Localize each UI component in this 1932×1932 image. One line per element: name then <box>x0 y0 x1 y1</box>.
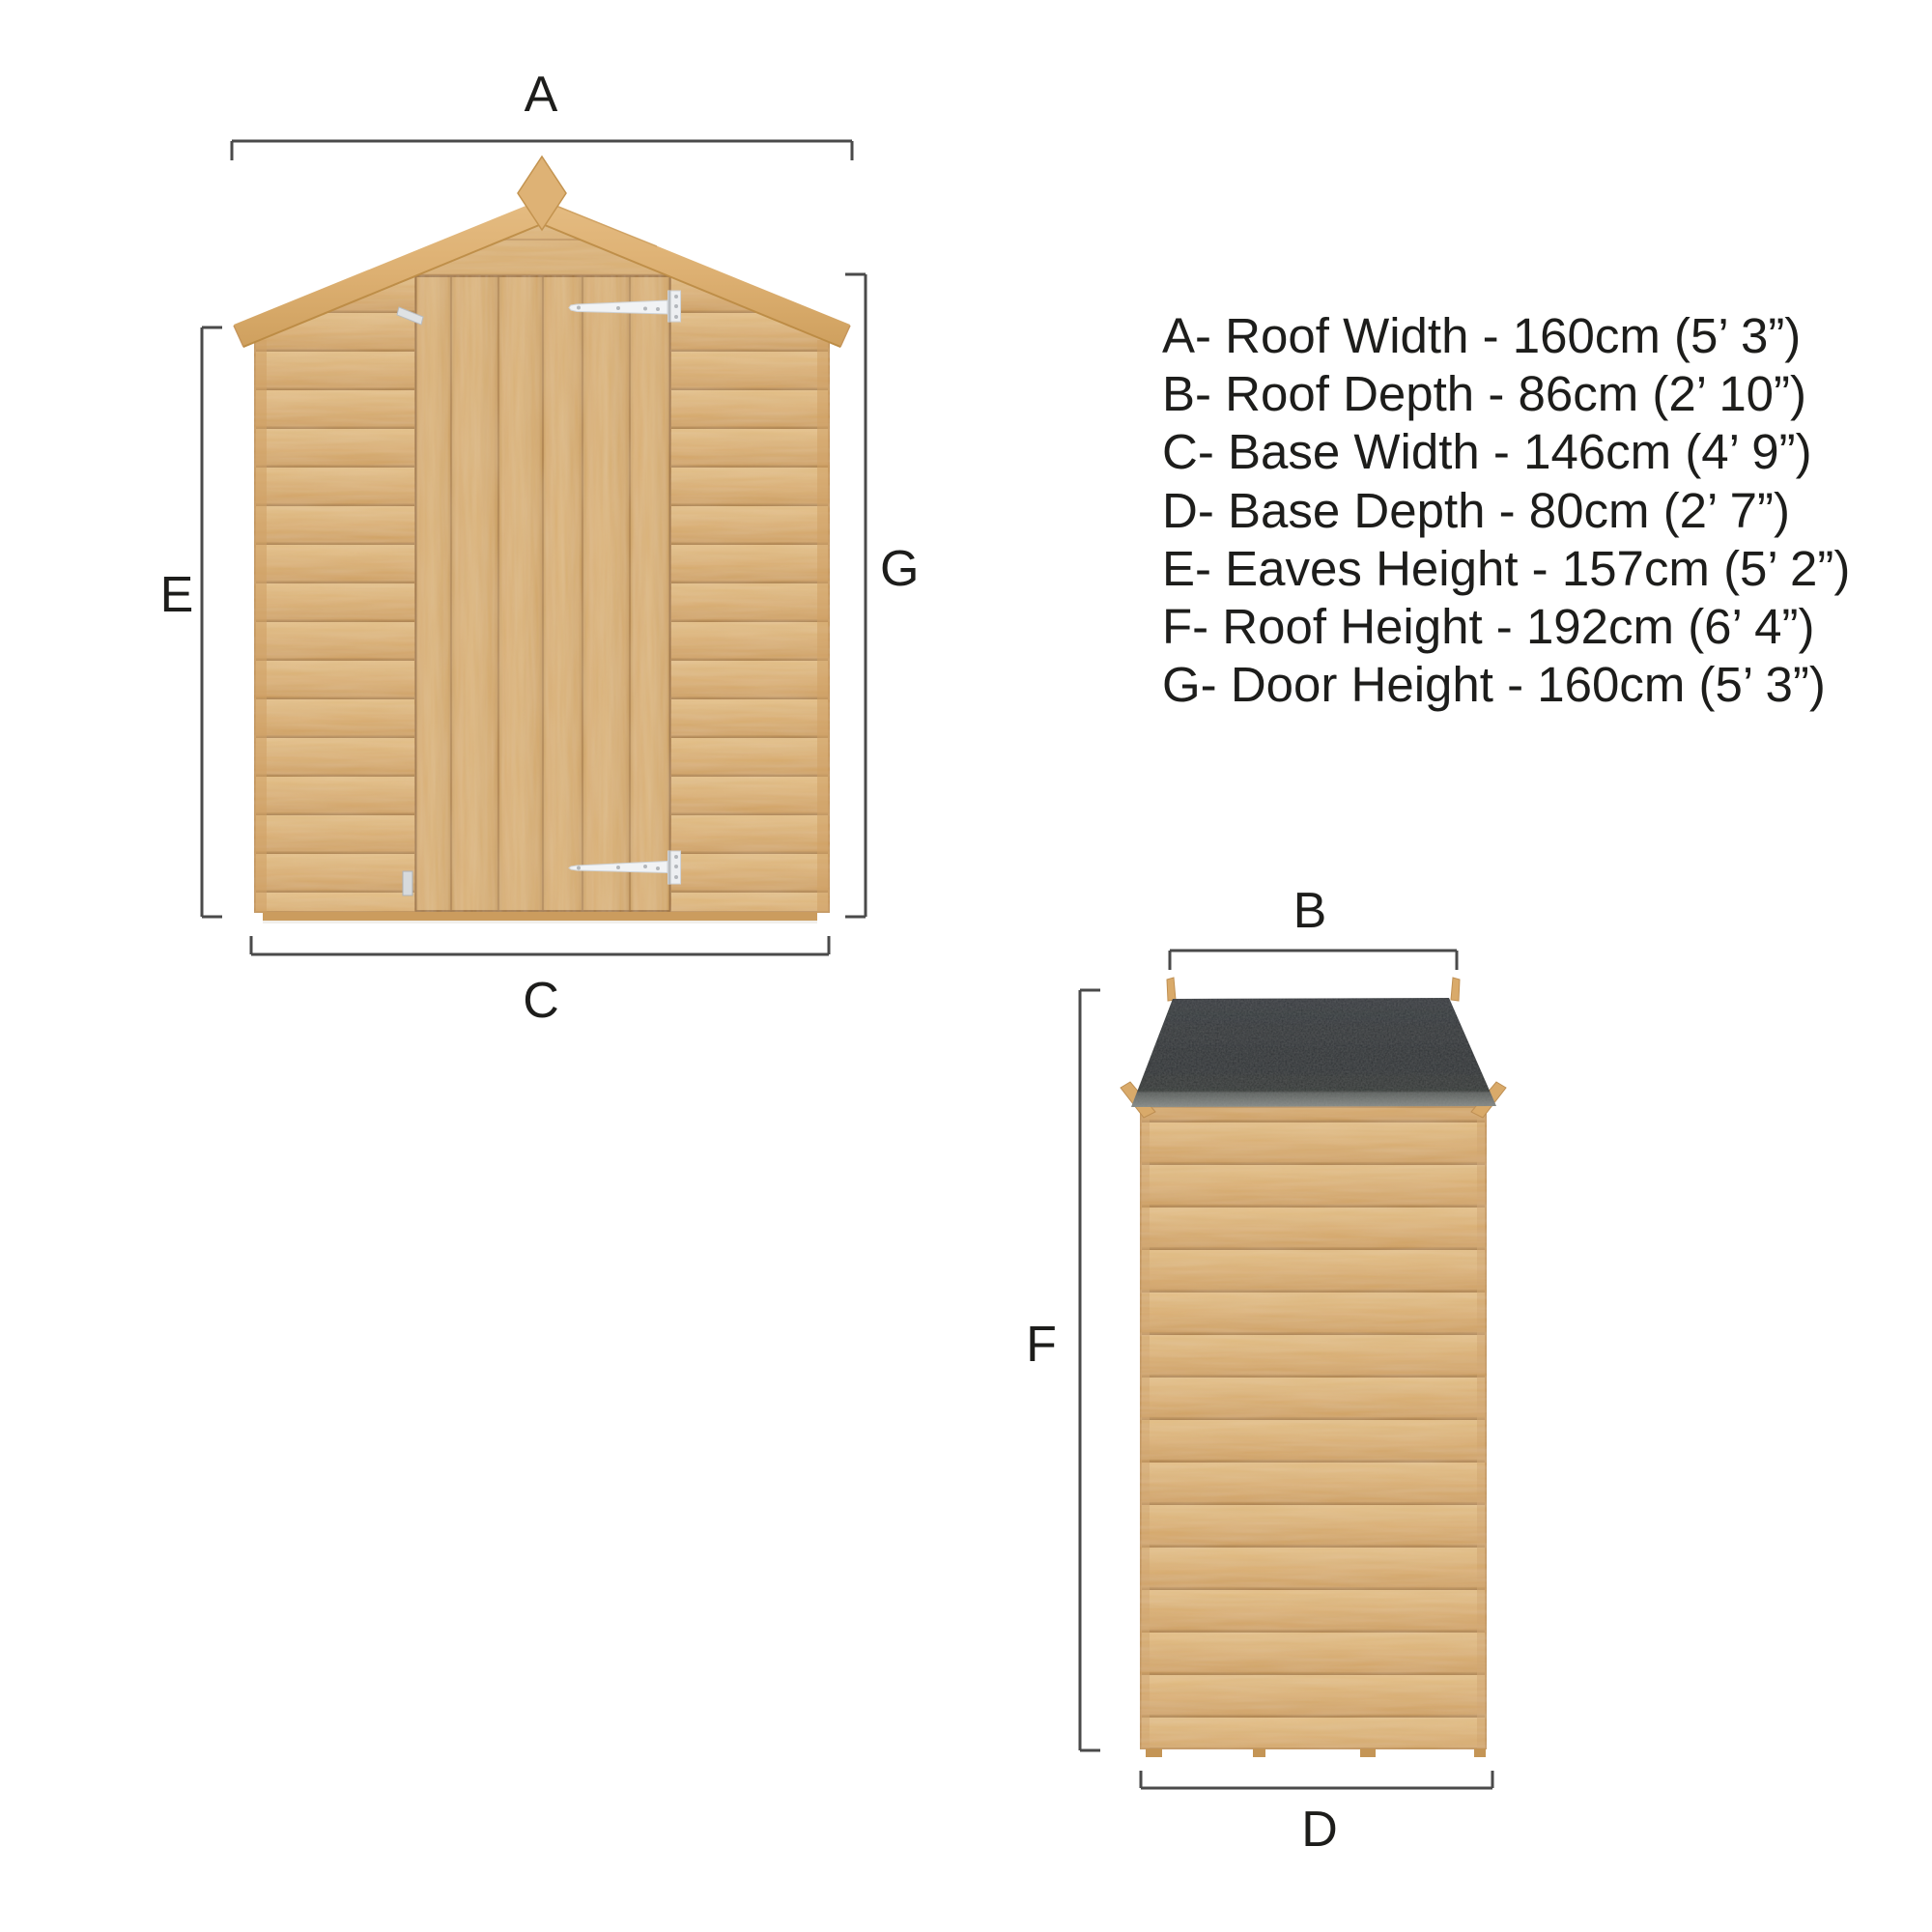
svg-text:A- Roof Width - 160cm (5’ 3”): A- Roof Width - 160cm (5’ 3”) <box>1162 308 1801 363</box>
svg-text:E: E <box>160 567 194 623</box>
svg-text:C: C <box>523 973 559 1029</box>
svg-text:G- Door Height - 160cm (5’ 3”): G- Door Height - 160cm (5’ 3”) <box>1162 657 1826 712</box>
svg-text:G: G <box>880 541 919 597</box>
svg-text:F: F <box>1026 1317 1057 1373</box>
svg-text:A: A <box>525 67 558 123</box>
svg-text:B: B <box>1293 883 1327 939</box>
svg-text:F- Roof Height - 192cm (6’ 4”: F- Roof Height - 192cm (6’ 4”) <box>1162 599 1814 654</box>
svg-text:D- Base Depth - 80cm (2’ 7”): D- Base Depth - 80cm (2’ 7”) <box>1162 483 1790 538</box>
svg-text:B- Roof Depth - 86cm (2’ 10”): B- Roof Depth - 86cm (2’ 10”) <box>1162 366 1806 421</box>
svg-text:E- Eaves Height - 157cm (5’ 2”: E- Eaves Height - 157cm (5’ 2”) <box>1162 541 1850 596</box>
svg-text:D: D <box>1301 1802 1338 1858</box>
svg-text:C- Base Width - 146cm (4’ 9”): C- Base Width - 146cm (4’ 9”) <box>1162 424 1812 479</box>
